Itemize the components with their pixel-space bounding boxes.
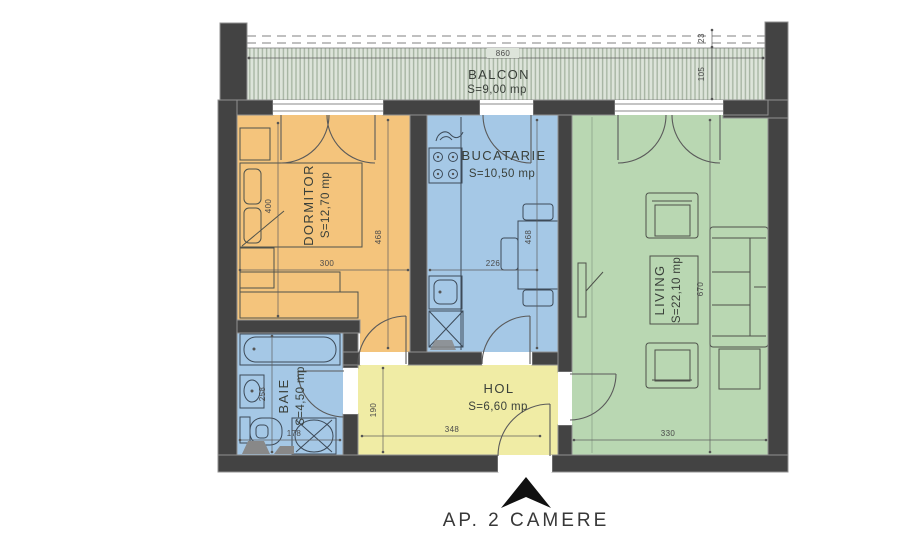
living-floor (572, 115, 768, 455)
dim-hol-depth: 190 (369, 403, 378, 418)
bucatarie-name: BUCATARIE (461, 148, 546, 163)
dim-bucatarie-width: 226 (486, 259, 501, 268)
dormitor-area: S=12,70 mp (320, 172, 332, 238)
baie-area: S=4,50 mp (295, 366, 307, 426)
living-area: S=22,10 mp (671, 257, 683, 323)
dormitor-name: DORMITOR (301, 164, 316, 246)
dim-dormitor-width: 300 (320, 259, 335, 268)
plan-title: AP. 2 CAMERE (443, 510, 610, 531)
floor-plan: 860 23 105 400 468 300 226 468 670 330 2… (0, 0, 898, 556)
hol-area: S=6,60 mp (468, 401, 528, 413)
hol-floor (358, 365, 558, 455)
dim-living-width: 330 (661, 429, 676, 438)
living-name: LIVING (652, 264, 667, 315)
dim-dormitor-depth: 468 (374, 230, 383, 245)
hol-name: HOL (484, 381, 515, 396)
dim-balcony-overhang: 23 (697, 33, 706, 43)
balcony-area: S=9,00 mp (467, 84, 527, 96)
dim-living-depth: 670 (696, 282, 705, 297)
dim-balcony-width: 860 (496, 49, 511, 58)
dim-hol-width: 348 (445, 425, 460, 434)
baie-name: BAIE (276, 378, 291, 413)
bucatarie-area: S=10,50 mp (469, 168, 535, 180)
balcony-name: BALCON (468, 67, 530, 82)
dim-dormitor-bed: 400 (264, 199, 273, 214)
dim-baie-depth: 258 (258, 387, 267, 402)
dim-bucatarie-depth: 468 (524, 230, 533, 245)
dim-baie-width: 178 (287, 429, 302, 438)
dim-balcony-depth: 105 (697, 67, 706, 82)
